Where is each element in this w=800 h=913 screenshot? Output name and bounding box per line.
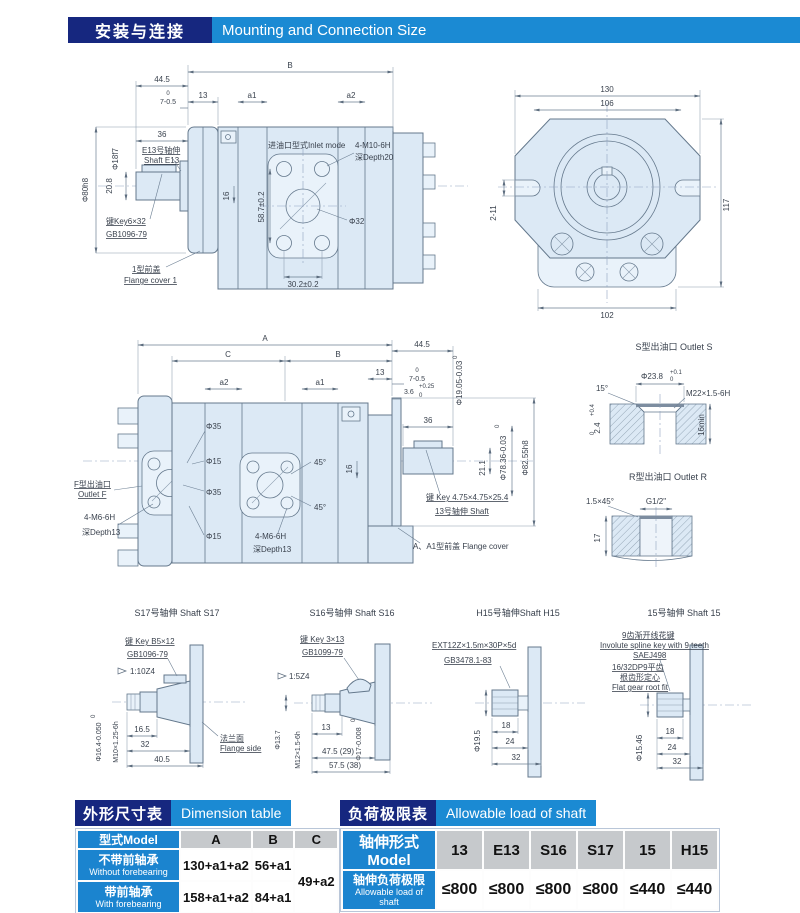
dim-16: 16 [222,191,231,200]
dim-a2: a2 [220,378,229,387]
dim-phi7836: Φ78.36-0.03 [499,435,508,480]
label-flange-side-en: Flange side [220,744,262,753]
label-key6x32: 键Key6×32 [106,216,146,226]
dim-7-tol: 0 [415,368,419,374]
outlet-r-section [612,507,692,568]
dim-117: 117 [722,198,731,211]
dim-58-7: 58.7±0.2 [257,191,266,223]
dim-57-5: 57.5 (38) [329,761,361,770]
label-fit-zh2: 根齿形定心 [620,672,660,682]
row-label-zh: 轴伸负荷极限 [345,873,433,887]
dim-phi17: Φ17-0.008 [356,727,363,760]
dim-36-tol-top: +0.25 [419,384,435,390]
dim-16: 16 [345,464,354,473]
dim-16-5: 16.5 [134,725,150,734]
dim-13: 13 [322,723,331,732]
label-key-b5x12: 键 Key B5×12 [125,636,175,646]
page-title-zh: 安装与连接 [68,17,212,43]
outlet-s-title: S型出油口 Outlet S [635,341,712,352]
cell-model-e13: E13 [484,831,529,869]
dim-g12: G1/2" [646,497,666,506]
label-spline-en: Involute spline key with 9 teeth [600,641,709,650]
dim-phi238-tol-bot: 0 [670,377,674,383]
dim-24: 24 [668,743,677,752]
dimension-table-title-zh: 外形尺寸表 [75,800,171,826]
cell-model-s17: S17 [578,831,623,869]
dim-2-11: 2-11 [489,205,498,221]
label-gb1096: GB1096-79 [106,230,147,239]
shaft-h15-title: H15号轴伸Shaft H15 [476,607,560,618]
dim-13: 13 [199,91,208,100]
drawing-shaft-h15: H15号轴伸Shaft H15 EXT12Z×1.5m×30P×5d GB347… [430,600,615,792]
row-label-en: With forebearing [80,899,177,909]
dim-47-5: 47.5 (29) [322,747,354,756]
cell-model-13: 13 [437,831,482,869]
dim-30-2: 30.2±0.2 [287,280,319,289]
label-gb1099: GB1099-79 [302,648,343,657]
dim-a2: a2 [347,91,356,100]
cell-load-15: ≤440 [625,871,670,909]
cell-load-e13: ≤800 [484,871,529,909]
dim-phi1905: Φ19.05-0.03 [455,360,464,405]
dim-44-5: 44.5 [154,75,170,84]
dim-44-5: 44.5 [414,340,430,349]
label-fit-en: Flat gear root fit [612,683,669,692]
dim-phi18f7: Φ18f7 [111,147,120,170]
dim-13: 13 [376,368,385,377]
cell-load-s17: ≤800 [578,871,623,909]
label-key-3x13: 键 Key 3×13 [300,634,345,644]
dim-phi35b: Φ35 [206,488,222,497]
cell-model-h15: H15 [672,831,717,869]
dim-phi164: Φ16.4-0.050 [96,722,103,761]
cell-model-15: 15 [625,831,670,869]
dimension-table-title: 外形尺寸表 Dimension table [75,800,340,826]
dim-17: 17 [593,533,602,542]
cell-b-without: 56+a1 [253,850,294,880]
load-table-title: 负荷极限表 Allowable load of shaft [340,800,720,826]
dim-phi80h8: Φ80h8 [81,177,90,202]
label-depth13-mid: 深Depth13 [253,545,292,554]
catalog-page: 安装与连接 Mounting and Connection Size [0,0,800,913]
pump-body [83,396,533,566]
label-shaft-e13-zh: E13号轴伸 [142,145,180,155]
label-cover1-en: Flange cover 1 [124,276,177,285]
label-gb3478: GB3478.1-83 [444,656,492,665]
drawing-side-view-shaft-e13: 44.5 B 13 a1 a2 0 7-0.5 36 E13号轴伸 Shaft … [68,55,483,321]
label-4m6-left: 4-M6-6H [84,513,115,522]
shaft-geometry [294,644,432,760]
dim-7-tol: 0 [166,91,170,97]
cell-b-with: 84+a1 [253,882,294,912]
cell-shaft-model-header: 轴伸形式Model [343,831,435,869]
label-outlet-f-zh: F型出油口 [74,479,111,489]
cell-col-c: C [295,831,337,848]
shaft-s16-title: S16号轴伸 Shaft S16 [309,607,394,618]
dim-a1: a1 [316,378,325,387]
dim-phi8255: Φ82.55h8 [521,440,530,476]
label-gb1096: GB1096-79 [127,650,168,659]
dim-18: 18 [502,721,511,730]
page-title-en: Mounting and Connection Size [212,17,800,43]
row-label-zh: 不带前轴承 [80,853,177,867]
dim-phi32: Φ32 [349,217,365,226]
cell-c-merged: 49+a2 [295,850,337,912]
dim-130: 130 [600,85,614,94]
dim-24-tol-top: +0.4 [590,403,596,416]
dim-phi35a: Φ35 [206,422,222,431]
label-4-m10-6h: 4-M10-6H [355,141,391,150]
dim-a1: a1 [248,91,257,100]
dim-phi238: Φ23.8 [641,372,664,381]
label-4m6-mid: 4-M6-6H [255,532,286,541]
dim-40-5: 40.5 [154,755,170,764]
load-table-title-en: Allowable load of shaft [436,800,596,826]
cell-load-s16: ≤800 [531,871,576,909]
cell-load-row-header: 轴伸负荷极限 Allowable load of shaft [343,871,435,909]
dim-phi1905-tol: 0 [453,355,459,359]
row-label-zh: 带前轴承 [80,885,177,899]
dim-phi7836-tol: 0 [495,424,501,428]
label-inlet-mode: 进油口型式Inlet mode [268,140,346,150]
dim-16min: 16min [697,414,706,436]
shaft-s17-title: S17号轴伸 Shaft S17 [134,607,219,618]
dim-phi15-46: Φ15.46 [635,734,644,761]
label-outlet-f-en: Outlet F [78,490,107,499]
drawing-shaft-s16: S16号轴伸 Shaft S16 键 Key 3×13 GB1099-79 1:… [272,600,448,792]
label-cover1-zh: 1型前盖 [132,264,160,274]
drawing-front-view: 130 106 117 102 2-11 [488,58,793,324]
dim-chamfer: 1.5×45° [586,497,614,506]
label-taper-1-5z4: 1:5Z4 [289,672,310,681]
dim-a: A [262,334,268,343]
dim-32: 32 [512,753,521,762]
dim-phi15a: Φ15 [206,457,222,466]
dim-phi164-tol: 0 [91,714,97,718]
dimension-table-title-en: Dimension table [171,800,291,826]
shaft-geometry [475,647,585,777]
label-ext12z: EXT12Z×1.5m×30P×5d [432,641,516,650]
dim-b: B [335,350,340,359]
cell-load-h15: ≤440 [672,871,717,909]
drawing-side-view-shaft-13: A C B 44.5 13 0 7-0.5 +0.25 3.6 0 0 Φ19.… [68,328,558,580]
cell-load-13: ≤800 [437,871,482,909]
dimension-table: 型式Model A B C 不带前轴承 Without forebearing … [75,828,340,913]
dim-3-6: 3.6 [404,389,414,396]
dim-phi19-5: Φ19.5 [473,729,482,752]
dimension-table-section: 外形尺寸表 Dimension table 型式Model A B C 不带前轴… [75,800,340,913]
cell-row-with-forebearing: 带前轴承 With forebearing [78,882,179,912]
cell-col-a: A [181,831,251,848]
label-flange-side-zh: 法兰面 [220,733,244,743]
load-table: 轴伸形式Model 13 E13 S16 S17 15 H15 轴伸负荷极限 A… [340,828,720,912]
drawing-shaft-s17: S17号轴伸 Shaft S17 键 Key B5×12 GB1096-79 1… [80,600,280,792]
dim-m10-thread: M10×1.25-6h [113,721,120,763]
drawing-outlet-r: R型出油口 Outlet R 1.5×45° G1/2" 17 [556,460,799,577]
label-fit-zh1: 16/32DP9平齿 [612,663,664,672]
cell-model-s16: S16 [531,831,576,869]
dim-36: 36 [158,130,167,139]
label-depth20: 深Depth20 [355,153,394,162]
pump-front [498,103,716,303]
dim-18: 18 [666,727,675,736]
dim-7: 7-0.5 [409,376,425,383]
dim-45a: 45° [314,458,326,467]
dim-phi15b: Φ15 [206,532,222,541]
load-table-title-zh: 负荷极限表 [340,800,436,826]
cell-row-without-forebearing: 不带前轴承 Without forebearing [78,850,179,880]
shaft-15-title: 15号轴伸 Shaft 15 [647,607,720,618]
dim-7: 7-0.5 [160,99,176,106]
dim-20-8: 20.8 [105,178,114,194]
outlet-s-section [610,394,706,454]
label-shaft-13: 13号轴伸 Shaft [435,506,490,516]
dim-102: 102 [600,311,614,320]
dim-phi238-tol-top: +0.1 [670,370,683,376]
label-m22: M22×1.5-6H [686,389,730,398]
cell-col-b: B [253,831,294,848]
dim-106: 106 [600,99,614,108]
drawing-shaft-15: 15号轴伸 Shaft 15 9齿渐开线花键 Involute spline k… [598,600,798,792]
label-depth13-left: 深Depth13 [82,528,121,537]
load-table-section: 负荷极限表 Allowable load of shaft 轴伸形式Model … [340,800,720,912]
dim-32: 32 [673,757,682,766]
label-key-475: 键 Key 4.75×4.75×25.4 [426,492,509,502]
label-a-a1-cover: A、A1型前盖 Flange cover [413,541,509,551]
cell-a-without: 130+a1+a2 [181,850,251,880]
cell-model-header: 型式Model [78,831,179,848]
label-sae-j498: SAEJ498 [633,651,667,660]
dim-36: 36 [424,416,433,425]
dim-m12-thread: M12×1.5-6h [295,731,302,769]
dim-c: C [225,350,231,359]
dim-phi13-7: Φ13.7 [275,730,282,749]
dim-24: 24 [506,737,515,746]
dim-15deg: 15° [596,384,608,393]
dim-32: 32 [141,740,150,749]
row-label-en: Allowable load of shaft [345,887,433,907]
dim-21-1: 21.1 [478,460,487,476]
cell-a-with: 158+a1+a2 [181,882,251,912]
row-label-en: Without forebearing [80,867,177,877]
drawing-outlet-s: S型出油口 Outlet S Φ23.8 +0.1 0 15° M22×1.5-… [556,332,799,459]
dim-45b: 45° [314,503,326,512]
dim-b: B [287,61,292,70]
outlet-r-title: R型出油口 Outlet R [629,471,708,482]
label-spline-zh: 9齿渐开线花键 [622,630,674,640]
label-taper-1-10z4: 1:10Z4 [130,667,155,676]
